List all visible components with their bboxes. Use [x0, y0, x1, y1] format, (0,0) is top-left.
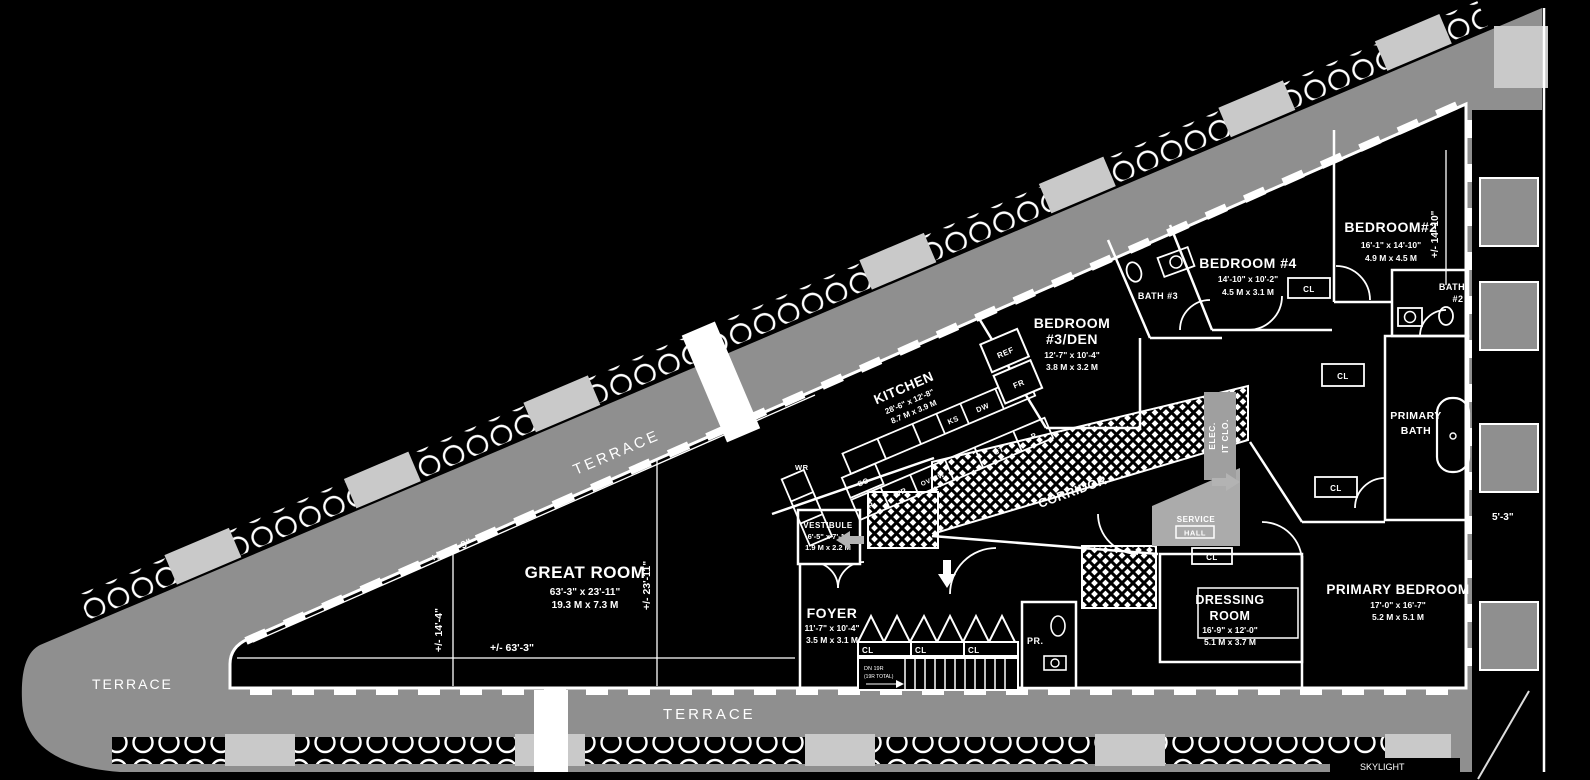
primary-bath-label-1: PRIMARY [1390, 410, 1442, 422]
primary-bath-label-2: BATH [1401, 425, 1431, 437]
dressing-room-label-1: DRESSING [1195, 593, 1264, 607]
bedroom2-label: BEDROOM#2 [1344, 219, 1437, 235]
service-hall-label-1: SERVICE [1177, 515, 1216, 524]
great-room-dim-ft: 63'-3" x 23'-11" [550, 587, 621, 598]
terrace-gap-bottom-dim: 4'-5" [544, 708, 555, 730]
planter [225, 734, 295, 766]
bedroom4-label: BEDROOM #4 [1199, 255, 1297, 271]
baluster-row [112, 737, 1448, 764]
primary-bedroom-dim-m: 5.2 M x 5.1 M [1372, 612, 1424, 622]
terrace-bottom-label: TERRACE [663, 706, 756, 723]
window-bay [1480, 178, 1538, 246]
powder-room-label: PR. [1027, 636, 1044, 646]
primary-bedroom-dim-ft: 17'-0" x 16'-7" [1370, 600, 1426, 610]
stair-note-2: (19R TOTAL) [864, 674, 894, 680]
shaft [1082, 546, 1156, 608]
closet-label: CL [1330, 484, 1342, 493]
great-room-dim-m: 19.3 M x 7.3 M [552, 600, 619, 611]
window-bay [1480, 424, 1538, 492]
dim-tip-height: +/- 14'-4" [433, 608, 445, 652]
unit-outline-wall [230, 104, 1466, 688]
closet-label: CL [1337, 372, 1349, 381]
foyer-dim-m: 3.5 M x 3.1 M [806, 635, 858, 645]
closet-label: CL [1303, 285, 1315, 294]
bedroom2-dim-ft: 16'-1" x 14'-10" [1361, 240, 1421, 250]
foyer-label: FOYER [807, 605, 858, 621]
planter [805, 734, 875, 766]
dim-bedroom2-height: +/- 14'-10" [1430, 210, 1441, 258]
closet-label: CL [862, 646, 874, 655]
dressing-room-dim-m: 5.1 M x 3.7 M [1204, 637, 1256, 647]
bath3-label: BATH #3 [1138, 291, 1178, 301]
foyer-dim-ft: 11'-7" x 10'-4" [804, 623, 859, 633]
bedroom4-dim-ft: 14'-10" x 10'-2" [1218, 274, 1278, 284]
bedroom2-dim-m: 4.9 M x 4.5 M [1365, 253, 1417, 263]
closet-label: CL [915, 646, 927, 655]
dim-great-height: +/- 23'-11" [641, 561, 653, 610]
bedroom3-label-2: #3/DEN [1046, 331, 1098, 347]
dim-right-gap: 5'-3" [1492, 512, 1514, 523]
dim-great-width: +/- 63'-3" [490, 642, 534, 654]
floor-plan-drawing: 4'-5" TERRACE 4'-5" TERRACE TERRACE SKYL… [0, 0, 1590, 780]
stair-note-1: DN 19R [864, 666, 884, 672]
dressing-room-dim-ft: 16'-9" x 12'-0" [1202, 625, 1258, 635]
wine-fridge-label: WR [795, 463, 809, 472]
bedroom3-dim-m: 3.8 M x 3.2 M [1046, 362, 1098, 372]
closet-label: CL [968, 646, 980, 655]
shaft [868, 492, 938, 548]
closet-label: CL [1206, 553, 1218, 562]
bath2-label-2: #2 [1452, 294, 1463, 304]
great-room-label: GREAT ROOM [525, 563, 646, 582]
elec-closet-label-1: ELEC. [1207, 422, 1217, 450]
skylight-label: SKYLIGHT [1360, 762, 1405, 772]
window-bay [1480, 602, 1538, 670]
bedroom4-dim-m: 4.5 M x 3.1 M [1222, 287, 1274, 297]
dressing-room-label-2: ROOM [1210, 609, 1251, 623]
elec-it-closet: ELEC. IT CLO. [1204, 392, 1240, 491]
foyer-label-block: FOYER 11'-7" x 10'-4" 3.5 M x 3.1 M [804, 605, 859, 645]
floor-plan-page: 4'-5" TERRACE 4'-5" TERRACE TERRACE SKYL… [0, 0, 1590, 780]
window-bay [1494, 26, 1548, 88]
bedroom3-dim-ft: 12'-7" x 10'-4" [1044, 350, 1100, 360]
bath2-label-1: BATH [1439, 282, 1465, 292]
primary-bedroom-label: PRIMARY BEDROOM [1326, 582, 1469, 597]
elec-closet-label-2: IT CLO. [1220, 419, 1230, 453]
planter [1095, 734, 1165, 766]
window-bay [1480, 282, 1538, 350]
terrace-gap [534, 690, 568, 772]
bedroom3-label-1: BEDROOM [1034, 315, 1111, 331]
service-hall-label-2: HALL [1184, 529, 1206, 538]
terrace-left-label: TERRACE [92, 676, 173, 692]
